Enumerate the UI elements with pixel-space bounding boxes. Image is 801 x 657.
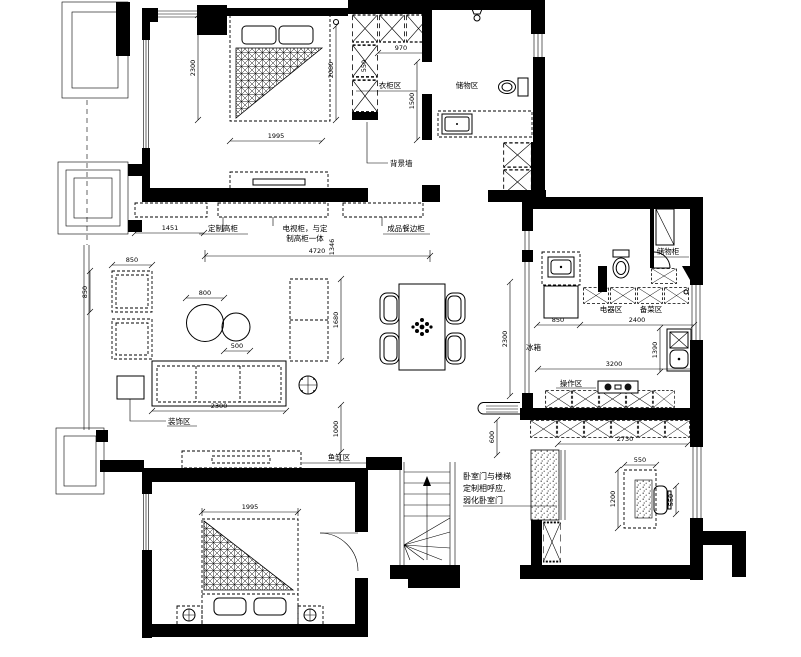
- dim-dining-depth: 2300: [501, 331, 509, 348]
- note-line-1: 卧室门与楼梯: [463, 471, 511, 481]
- label-sideboard: 成品餐边柜: [387, 223, 425, 233]
- label-tv-cabinet-2: 制高柜一体: [286, 233, 324, 243]
- dim-tv-cabinet: 1680: [332, 312, 340, 329]
- dim-door-offset: 600: [488, 431, 496, 443]
- dim-wardrobe-depth: 1500: [408, 93, 416, 110]
- label-background-wall: 背景墙: [390, 158, 413, 168]
- living-room: 850 850 800 500 2300 装饰区 1680 1000 鱼缸区: [81, 256, 378, 468]
- armchair: [112, 271, 152, 312]
- storage-room: 储物柜: [650, 209, 690, 283]
- decor-table: [117, 376, 144, 399]
- toilet-2: [613, 250, 629, 278]
- nightstand: [177, 606, 202, 625]
- island-sink: [667, 329, 691, 371]
- label-fish-tank-area: 鱼缸区: [328, 452, 351, 462]
- dim-coffee-table: 800: [199, 289, 211, 297]
- label-fridge: 冰箱: [526, 342, 541, 352]
- pillow: [279, 26, 313, 44]
- dining-chair: [380, 333, 399, 364]
- dim-desk-chair: 550: [667, 494, 675, 506]
- pocket-door: [478, 403, 520, 415]
- dim-armchair-width: 850: [126, 256, 138, 264]
- dim-kitchen-width: 3200: [606, 360, 623, 368]
- pillow: [214, 598, 246, 615]
- label-decor-area: 装饰区: [168, 416, 191, 426]
- dining-chair: [380, 293, 399, 324]
- label-appliance-area: 电器区: [600, 304, 623, 314]
- dim-cabinet-offset: 1451: [162, 224, 179, 232]
- exterior-bays: [56, 2, 142, 494]
- dining-chair: [446, 333, 465, 364]
- stove: [598, 381, 638, 393]
- dim-bedroom1-depth: 2300: [189, 60, 197, 77]
- armchair: [112, 319, 152, 359]
- dim-living-offset: 1346: [328, 239, 336, 256]
- label-storage-area: 储物区: [456, 80, 479, 90]
- concrete-pier: [531, 450, 559, 520]
- label-wardrobe-area: 衣柜区: [379, 80, 402, 90]
- bedroom-bottom-right: 2730 550 1200 550: [531, 421, 691, 562]
- dim-desk-length: 1200: [609, 491, 617, 508]
- dim-sofa-length: 2300: [211, 402, 228, 410]
- blanket: [236, 48, 322, 118]
- label-storage-cabinet: 储物柜: [657, 246, 680, 256]
- dim-living-width: 4720: [309, 247, 326, 255]
- dim-bed1-width: 1995: [268, 132, 285, 140]
- dining-chair: [446, 293, 465, 324]
- dim-wardrobe2: 2730: [617, 435, 634, 443]
- desk: [624, 470, 671, 528]
- sliding-door: [561, 450, 565, 520]
- dim-walkway: 1000: [332, 421, 340, 438]
- pillow: [242, 26, 276, 44]
- dim-wardrobe-side: 550: [360, 60, 368, 72]
- dim-armchair-depth: 850: [81, 286, 89, 298]
- ceiling-lamp-icon: [299, 376, 317, 394]
- note-line-3: 弱化卧室门: [463, 495, 503, 505]
- dim-island: 1390: [651, 342, 659, 359]
- note-line-2: 定制相呼应,: [463, 483, 506, 493]
- blanket: [204, 521, 293, 590]
- sofa: [152, 361, 286, 406]
- bathroom-top: 储物区: [438, 9, 532, 194]
- bedroom-top: 2300 1995 2080 970 550 1500 衣柜区 背景墙: [189, 12, 431, 192]
- dining-area: 2300: [380, 279, 513, 399]
- dim-bed1-length: 2080: [327, 62, 335, 79]
- bedroom-bottom-left: 1995: [177, 503, 358, 625]
- dim-side-table: 500: [231, 342, 243, 350]
- centerpiece-plant-icon: [411, 318, 432, 336]
- stair-direction-arrow: [423, 476, 431, 486]
- cabinet-row: 1451 定制高柜 电视柜，与定 制高柜一体 成品餐边柜 4720 1346: [132, 203, 433, 262]
- label-tv-cabinet-1: 电视柜，与定: [283, 223, 328, 233]
- staircase: [400, 462, 455, 572]
- label-cooking-area: 操作区: [560, 378, 583, 388]
- dim-wardrobe-width: 970: [395, 44, 407, 52]
- dim-fridge-width: 850: [552, 316, 564, 324]
- label-custom-tall-cabinet: 定制高柜: [208, 223, 238, 233]
- dim-counter-length: 2400: [629, 316, 646, 324]
- vanity: [438, 111, 532, 137]
- toilet: [499, 78, 529, 96]
- side-round-table: [222, 313, 250, 341]
- label-prep-area: 备菜区: [640, 304, 663, 314]
- coffee-table: [187, 305, 224, 342]
- floor-plan-page: 2300 1995 2080 970 550 1500 衣柜区 背景墙 储物区 …: [0, 0, 801, 657]
- fridge: [544, 286, 578, 318]
- dim-desk-width: 550: [634, 456, 646, 464]
- floor-plan-svg: 2300 1995 2080 970 550 1500 衣柜区 背景墙 储物区 …: [0, 0, 801, 657]
- pillow: [254, 598, 286, 615]
- dim-bed3-width: 1995: [242, 503, 259, 511]
- bedroom-door: [320, 533, 358, 571]
- nightstand: [298, 606, 323, 625]
- console-cabinet: [182, 451, 301, 468]
